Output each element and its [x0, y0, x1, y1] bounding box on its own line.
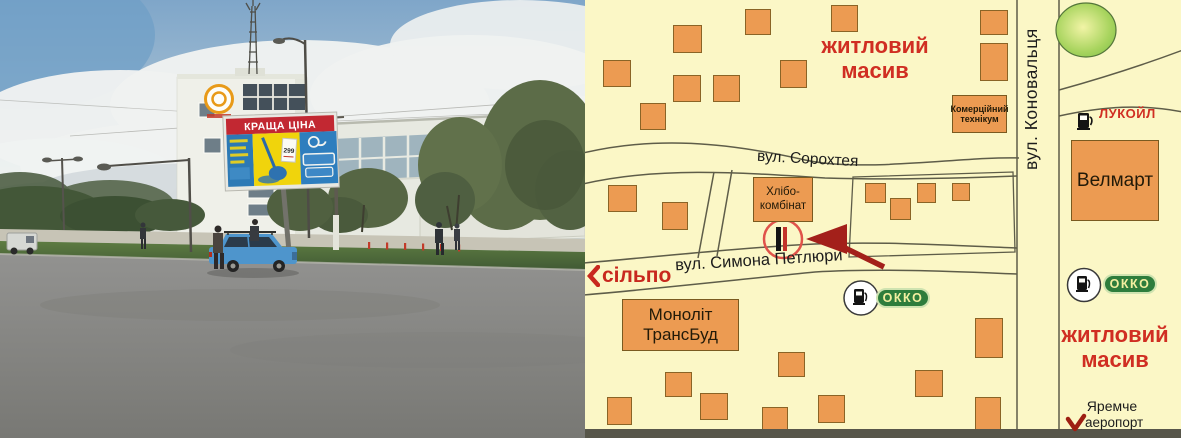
green-area: [1056, 3, 1116, 57]
commercial-college: Комерційний технікум: [952, 95, 1007, 133]
billboard-header-text: КРАЩА ЦІНА: [244, 119, 316, 134]
screen: КРАЩА ЦІНА 299: [0, 0, 1181, 438]
velmart-store: Велмарт: [1071, 140, 1159, 221]
price-text: 299: [283, 147, 295, 155]
bread-factory: Хлібо- комбінат: [753, 177, 813, 222]
okko-badge: ОККО: [1103, 274, 1157, 294]
silpo-sign: сільпо: [587, 264, 671, 288]
residential-area-label: житловий масив: [1045, 322, 1181, 373]
street-konovaltsia-label: вул. Коновальця: [1021, 10, 1041, 170]
airport-arrow-icon: [1068, 416, 1084, 429]
chevron-left-icon: [587, 265, 600, 287]
velmart-label: Велмарт: [1077, 170, 1153, 192]
location-map: Велмарт Комерційний технікум Хлібо- комб…: [585, 0, 1181, 438]
college-label: Комерційний технікум: [950, 104, 1008, 125]
okko-station-circle: [844, 281, 878, 315]
okko-station-circle: [1068, 269, 1101, 302]
price-tag: 299: [281, 138, 297, 162]
yaremche-label: Яремче: [1077, 398, 1147, 414]
airport-label: аеропорт: [1085, 415, 1165, 431]
street-photo: КРАЩА ЦІНА 299: [0, 0, 585, 438]
okko-badge: ОККО: [876, 288, 930, 308]
lukoil-label: ЛУКОЙЛ: [1099, 107, 1156, 122]
monolit-label: Моноліт ТрансБуд: [643, 305, 718, 344]
residential-area-label: житловий масив: [780, 33, 970, 84]
monolit-transbud: Моноліт ТрансБуд: [622, 299, 739, 351]
khlibokombinat-label: Хлібо- комбінат: [760, 186, 806, 212]
silpo-label: сільпо: [602, 264, 671, 288]
gas-pump-icon: [1077, 113, 1092, 130]
